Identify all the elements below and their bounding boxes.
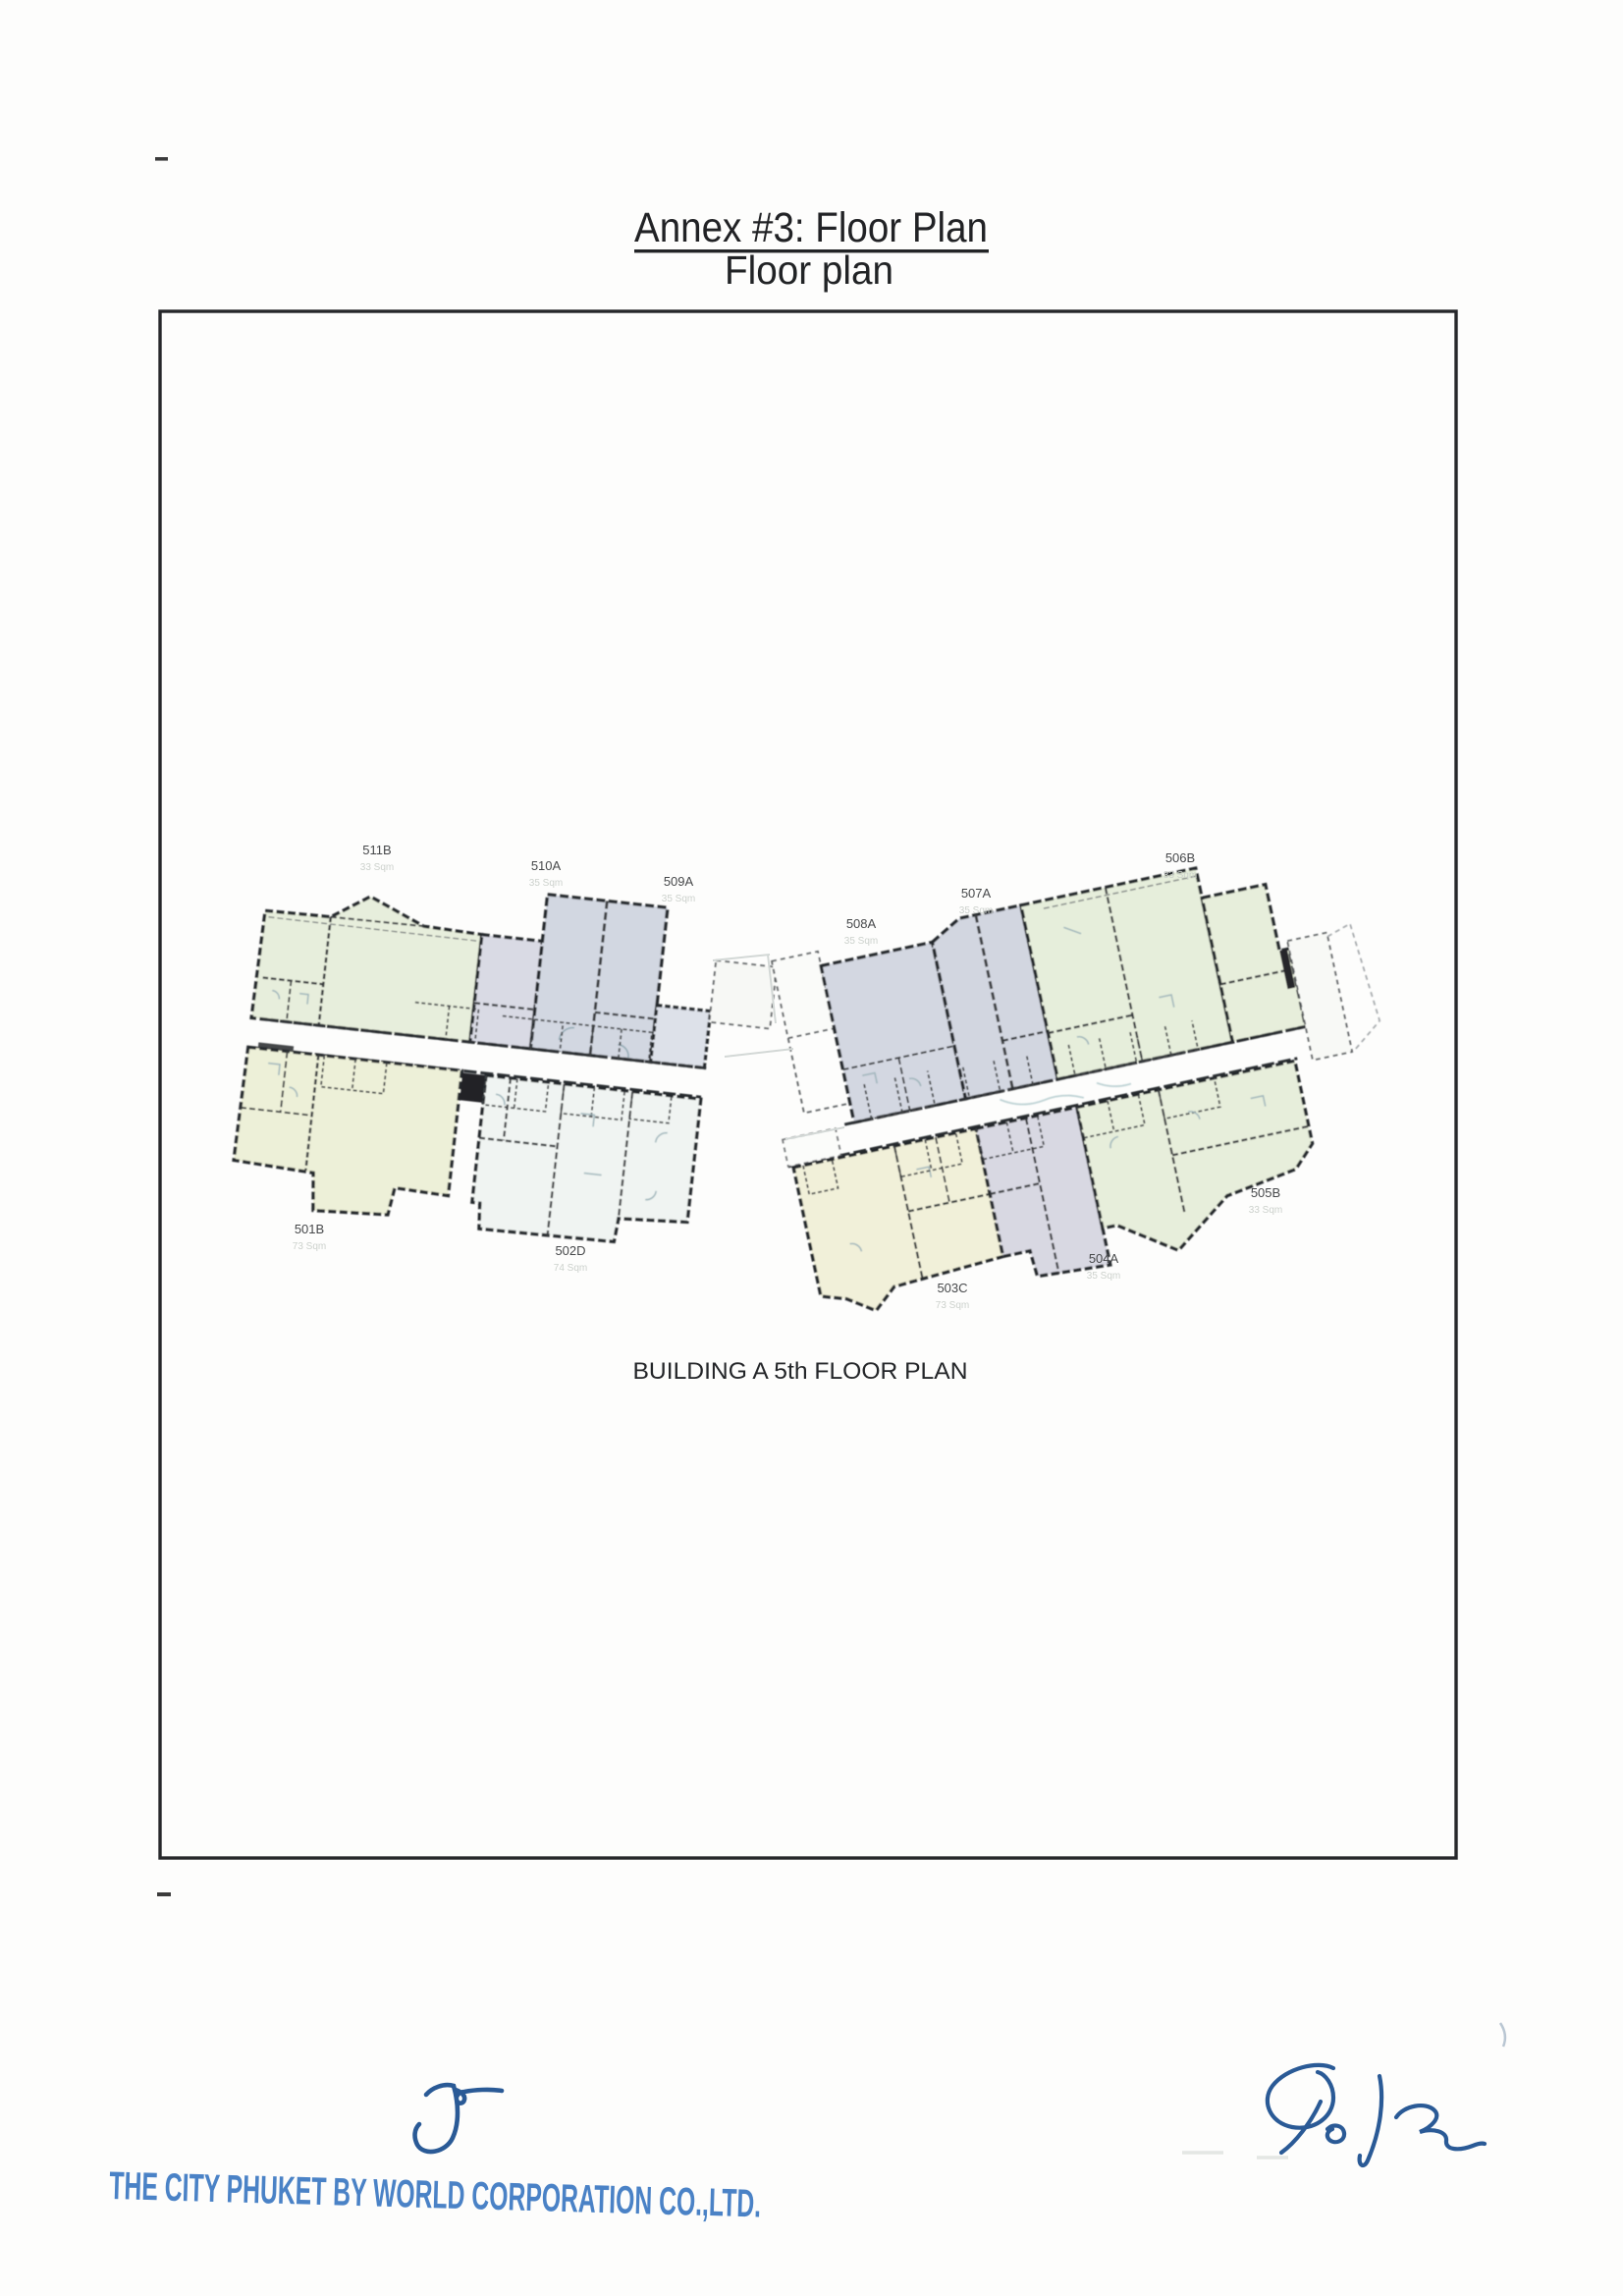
svg-text:73 Sqm: 73 Sqm (936, 1300, 969, 1311)
svg-text:505B: 505B (1251, 1185, 1280, 1200)
svg-text:73 Sqm: 73 Sqm (293, 1241, 326, 1252)
svg-text:Floor plan: Floor plan (725, 247, 893, 293)
svg-text:510A: 510A (531, 858, 562, 873)
svg-text:74 Sqm: 74 Sqm (554, 1263, 587, 1274)
svg-text:33 Sqm: 33 Sqm (1249, 1205, 1282, 1216)
svg-text:506B: 506B (1165, 850, 1195, 865)
svg-text:35 Sqm: 35 Sqm (844, 936, 878, 947)
svg-text:33 Sqm: 33 Sqm (1163, 870, 1197, 881)
svg-text:503C: 503C (937, 1281, 967, 1295)
svg-text:35 Sqm: 35 Sqm (1087, 1271, 1120, 1282)
svg-text:BUILDING A 5th FLOOR PLAN: BUILDING A 5th FLOOR PLAN (633, 1358, 968, 1385)
svg-text:35 Sqm: 35 Sqm (959, 905, 993, 916)
svg-text:35 Sqm: 35 Sqm (662, 894, 695, 904)
svg-text:Annex #3: Floor Plan: Annex #3: Floor Plan (634, 204, 988, 251)
svg-text:504A: 504A (1089, 1251, 1119, 1266)
svg-text:511B: 511B (362, 843, 391, 857)
svg-text:508A: 508A (846, 916, 877, 931)
svg-text:502D: 502D (555, 1243, 585, 1258)
svg-text:501B: 501B (295, 1222, 324, 1236)
svg-text:507A: 507A (961, 886, 992, 901)
svg-text:35 Sqm: 35 Sqm (529, 878, 563, 889)
svg-text:33 Sqm: 33 Sqm (360, 862, 394, 873)
svg-text:509A: 509A (664, 874, 694, 889)
